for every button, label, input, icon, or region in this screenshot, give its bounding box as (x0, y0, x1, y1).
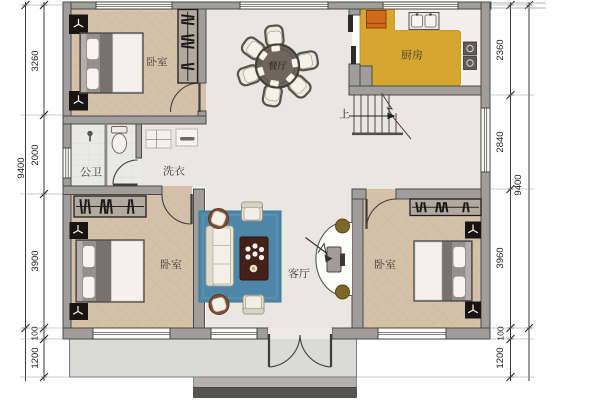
svg-text:2360: 2360 (495, 39, 506, 60)
svg-text:3900: 3900 (30, 250, 41, 271)
svg-text:1200: 1200 (495, 347, 506, 368)
svg-text:3960: 3960 (495, 247, 506, 268)
svg-text:1200: 1200 (30, 347, 41, 368)
svg-text:9400: 9400 (16, 157, 27, 178)
svg-text:3260: 3260 (30, 50, 41, 71)
svg-text:9400: 9400 (513, 174, 524, 195)
svg-text:2840: 2840 (495, 131, 506, 152)
svg-text:100: 100 (496, 326, 506, 340)
svg-text:2000: 2000 (30, 144, 41, 165)
svg-text:100: 100 (30, 326, 40, 340)
